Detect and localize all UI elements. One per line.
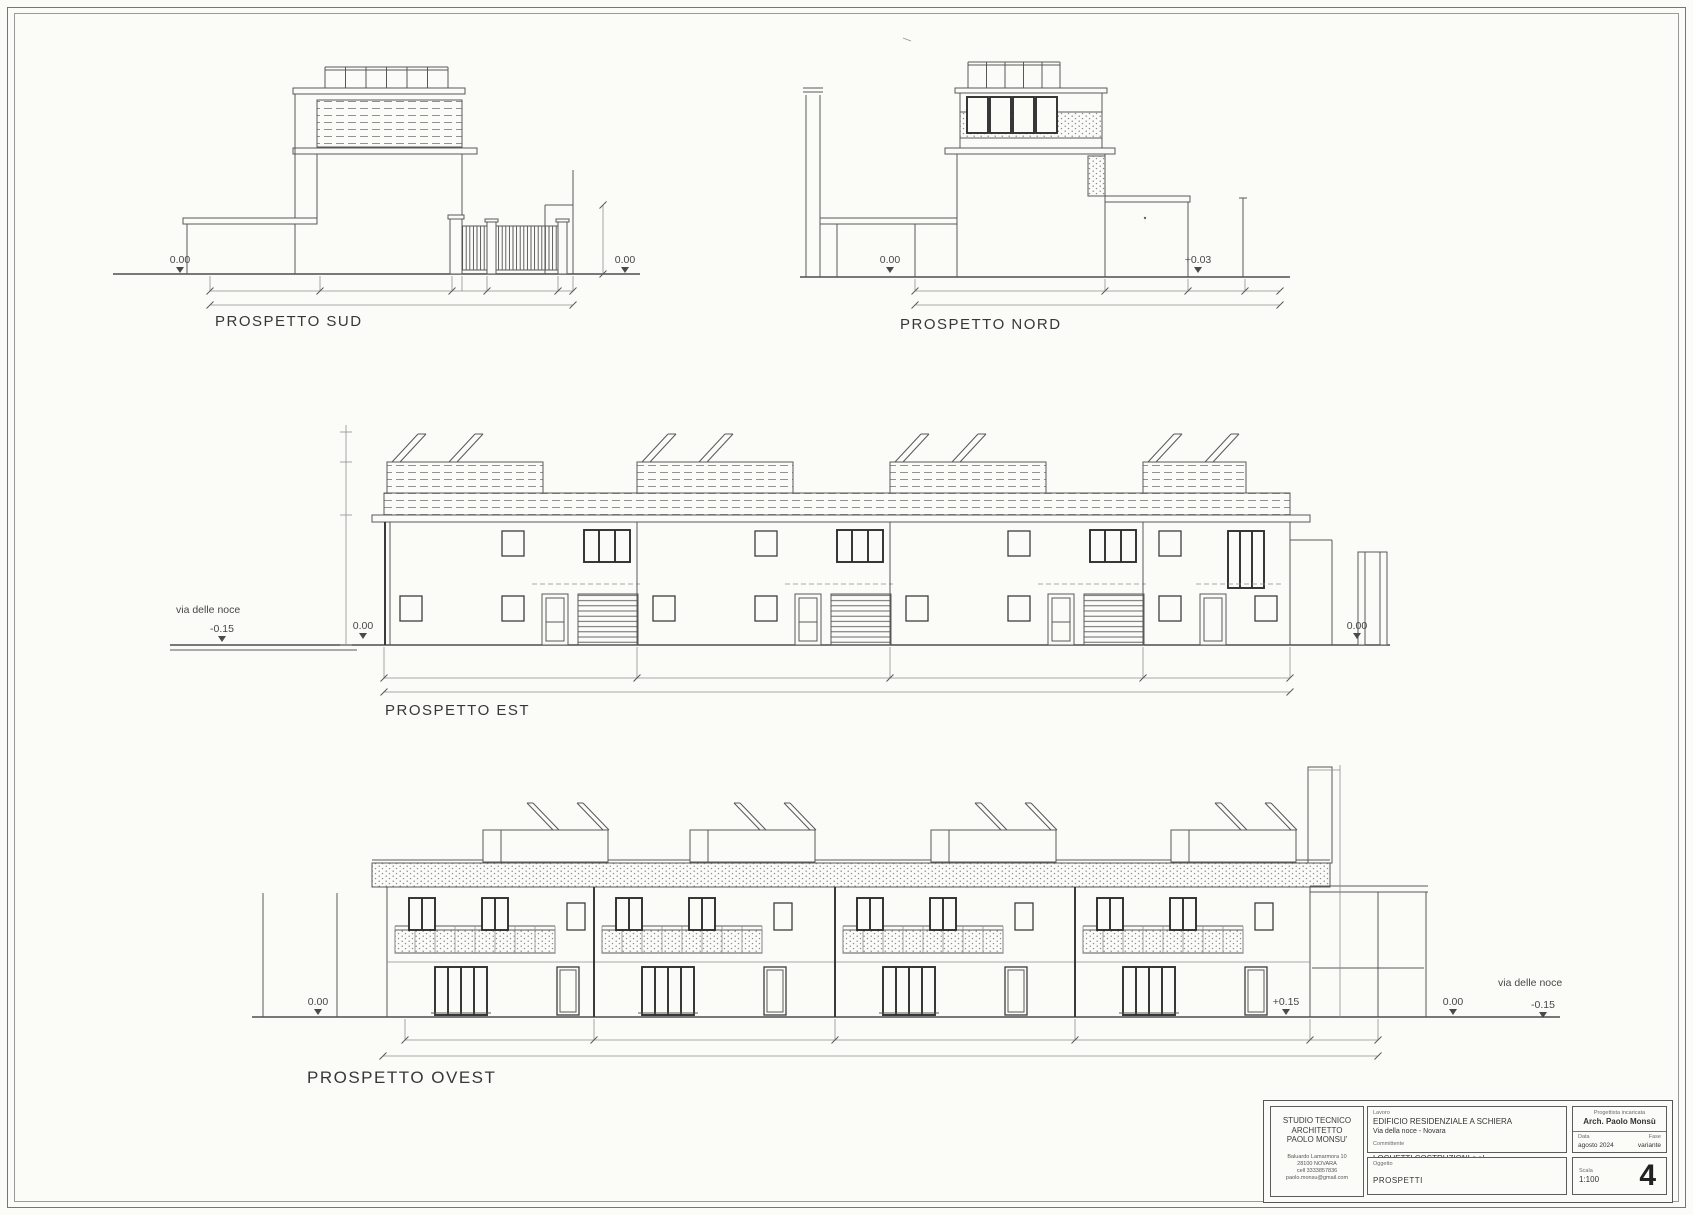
ovest-carport: [1310, 886, 1428, 1017]
level-marker: -0.15: [1521, 999, 1565, 1018]
nord-roof-railing: [968, 62, 1060, 88]
nord-dimensions: [912, 279, 1284, 309]
level-marker: +0.15: [1264, 996, 1308, 1015]
title-block: STUDIO TECNICO ARCHITETTO PAOLO MONSU' B…: [1263, 1100, 1673, 1203]
oggetto-label: Oggetto: [1373, 1161, 1561, 1168]
lavoro-label: Lavoro: [1373, 1110, 1561, 1117]
fase-field: Fase variante: [1638, 1134, 1661, 1151]
level-marker: 0.00: [1335, 620, 1379, 639]
elevation-title-nord: PROSPETTO NORD: [900, 316, 1062, 333]
level-marker: -0.15: [200, 623, 244, 642]
committente-label: Committente: [1373, 1141, 1561, 1148]
elevation-title-ovest: PROSPETTO OVEST: [307, 1068, 496, 1088]
data-field: Data agosto 2024: [1578, 1134, 1614, 1151]
street-label-est: via delle noce: [176, 604, 240, 616]
level-triangle-icon: [176, 267, 184, 273]
sud-fence-gate: [448, 215, 569, 274]
sheet-number: 4: [1639, 1159, 1656, 1193]
level-triangle-icon: [359, 633, 367, 639]
title-block-studio: STUDIO TECNICO ARCHITETTO PAOLO MONSU' B…: [1270, 1106, 1364, 1197]
level-triangle-icon: [621, 267, 629, 273]
level-triangle-icon: [1449, 1009, 1457, 1015]
studio-name: STUDIO TECNICO: [1271, 1116, 1363, 1126]
sud-hatch-band: [317, 100, 462, 147]
level-triangle-icon: [1194, 267, 1202, 273]
level-marker: 0.00: [296, 996, 340, 1015]
est-end-module: [1159, 531, 1281, 645]
level-triangle-icon: [218, 636, 226, 642]
studio-address: Baluardo Lamarmora 10 28100 NOVARA cell …: [1271, 1154, 1363, 1182]
level-marker: +0.03: [1176, 254, 1220, 273]
est-solar-panels: [392, 434, 1239, 462]
oggetto-value: PROSPETTI: [1373, 1176, 1561, 1186]
scan-mark: [903, 38, 911, 41]
title-block-oggetto: Oggetto PROSPETTI: [1367, 1157, 1567, 1195]
title-block-progettista: Progettista incaricata Arch. Paolo Monsù…: [1572, 1106, 1667, 1153]
level-marker: 0.00: [868, 254, 912, 273]
street-label-ovest: via delle noce: [1498, 977, 1562, 989]
level-triangle-icon: [886, 267, 894, 273]
drawing-sheet: PROSPETTO SUD PROSPETTO NORD PROSPETTO E…: [0, 0, 1693, 1215]
elevation-title-est: PROSPETTO EST: [385, 702, 530, 719]
title-block-scala: Scala 1:100 4: [1572, 1157, 1667, 1195]
level-triangle-icon: [1539, 1012, 1547, 1018]
level-marker: 0.00: [158, 254, 202, 273]
lavoro-value: EDIFICIO RESIDENZIALE A SCHIERA: [1373, 1117, 1561, 1127]
progettista-value: Arch. Paolo Monsù: [1573, 1117, 1666, 1127]
level-triangle-icon: [1353, 633, 1361, 639]
level-marker: 0.00: [341, 620, 385, 639]
title-block-lavoro: Lavoro EDIFICIO RESIDENZIALE A SCHIERA V…: [1367, 1106, 1567, 1153]
elevation-title-sud: PROSPETTO SUD: [215, 313, 363, 330]
elevation-drawings: [0, 0, 1693, 1215]
progettista-label: Progettista incaricata: [1573, 1110, 1666, 1117]
level-triangle-icon: [1282, 1009, 1290, 1015]
sud-roof-railing: [325, 67, 448, 88]
est-parapet-band: [384, 493, 1290, 515]
ovest-roof-band: [372, 863, 1330, 887]
ovest-dimensions: [380, 1019, 1382, 1060]
level-marker: 0.00: [603, 254, 647, 273]
prospetto-ovest-drawing: [252, 765, 1560, 1060]
ovest-end-parapet: [1308, 767, 1332, 863]
est-dimensions: [381, 647, 1294, 696]
level-marker: 0.00: [1431, 996, 1475, 1015]
prospetto-est-drawing: [170, 425, 1390, 696]
scala-field: Scala 1:100: [1573, 1168, 1599, 1185]
level-triangle-icon: [314, 1009, 322, 1015]
